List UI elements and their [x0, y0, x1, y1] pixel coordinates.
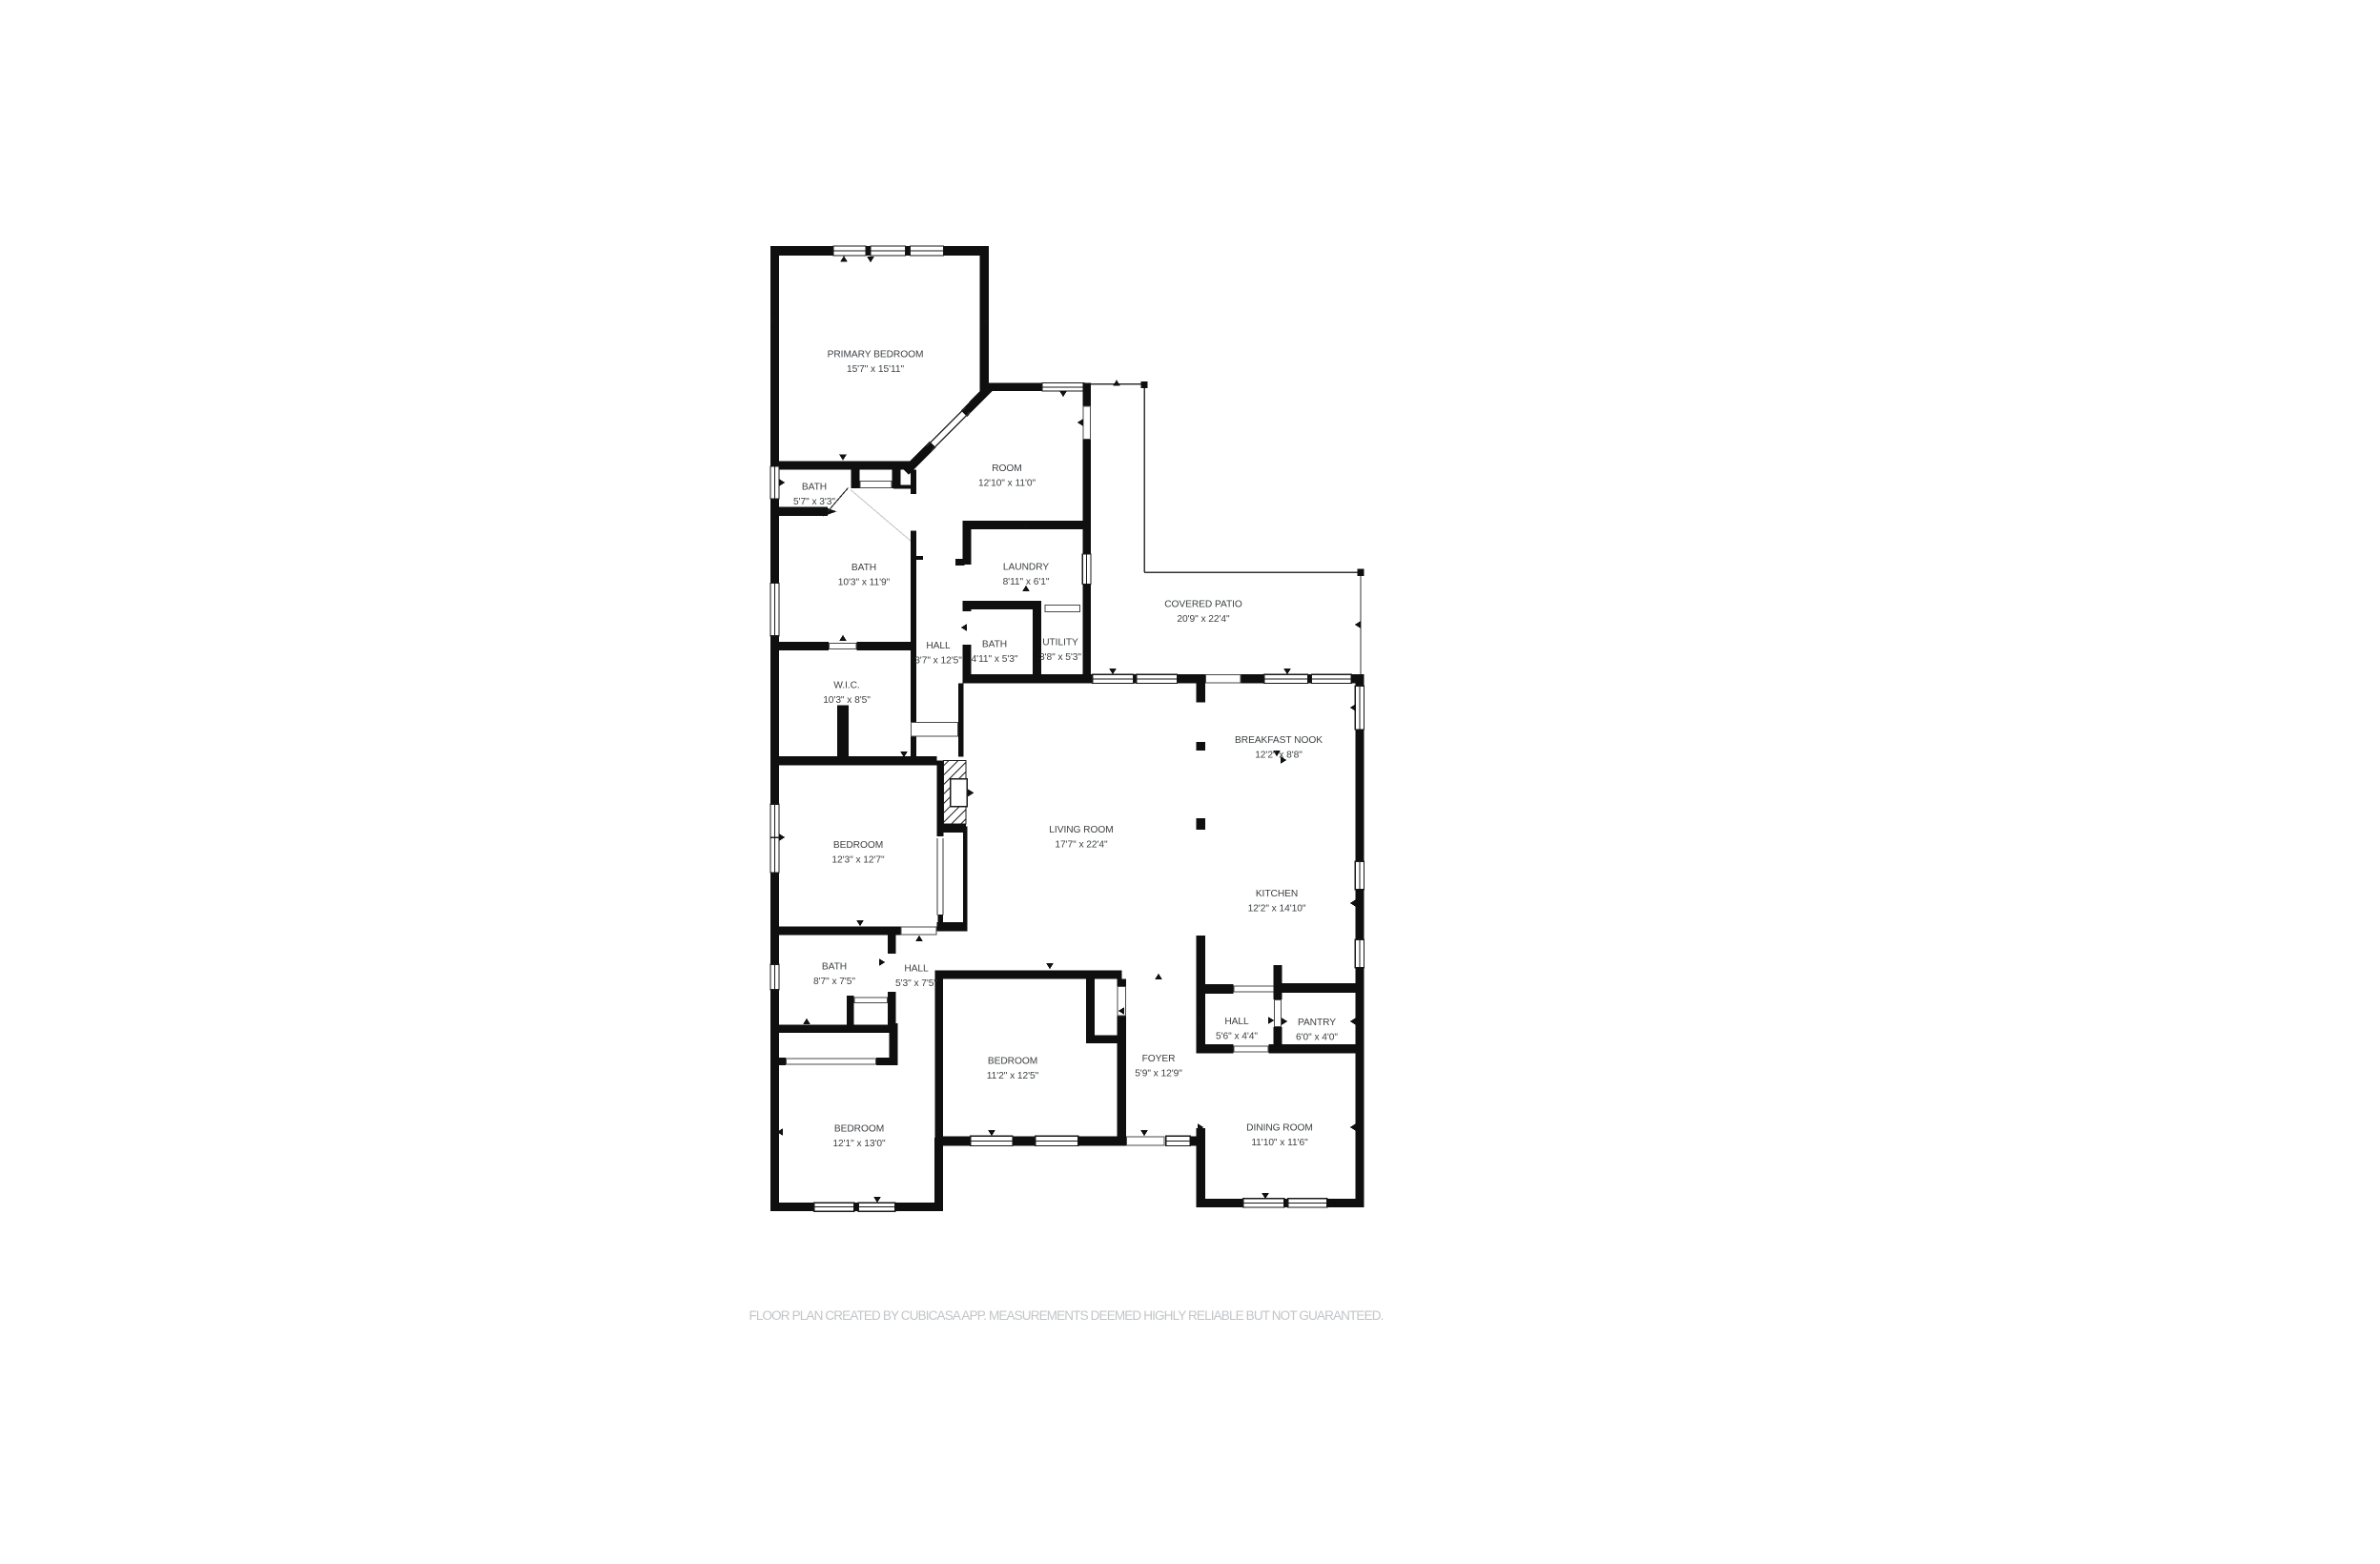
svg-text:5'6" x 4'4": 5'6" x 4'4": [1216, 1031, 1258, 1041]
svg-text:ROOM: ROOM: [992, 463, 1022, 474]
svg-text:LAUNDRY: LAUNDRY: [1003, 563, 1049, 573]
svg-text:BATH: BATH: [851, 563, 876, 573]
svg-text:HALL: HALL: [904, 964, 929, 975]
svg-text:BATH: BATH: [802, 483, 827, 493]
svg-text:HALL: HALL: [926, 641, 951, 651]
svg-text:17'7" x 22'4": 17'7" x 22'4": [1055, 839, 1108, 850]
svg-text:BEDROOM: BEDROOM: [988, 1057, 1037, 1067]
svg-text:15'7" x 15'11": 15'7" x 15'11": [847, 364, 905, 375]
svg-text:10'3" x 8'5": 10'3" x 8'5": [823, 695, 871, 706]
svg-text:PRIMARY BEDROOM: PRIMARY BEDROOM: [828, 350, 924, 360]
svg-text:BEDROOM: BEDROOM: [834, 1124, 884, 1135]
svg-text:12'10" x 11'0": 12'10" x 11'0": [978, 478, 1036, 488]
svg-text:FOYER: FOYER: [1142, 1054, 1176, 1064]
svg-text:12'2" x 8'8": 12'2" x 8'8": [1255, 750, 1303, 760]
svg-text:UTILITY: UTILITY: [1042, 638, 1078, 648]
svg-text:10'3" x 11'9": 10'3" x 11'9": [838, 577, 891, 587]
svg-text:3'7" x 12'5": 3'7" x 12'5": [914, 655, 962, 666]
svg-text:BATH: BATH: [982, 640, 1007, 650]
svg-text:KITCHEN: KITCHEN: [1256, 889, 1298, 899]
svg-text:5'7" x 3'3": 5'7" x 3'3": [793, 497, 835, 507]
svg-text:FLOOR PLAN CREATED BY CUBICASA: FLOOR PLAN CREATED BY CUBICASA APP. MEAS…: [749, 1308, 1383, 1323]
svg-text:8'7" x 7'5": 8'7" x 7'5": [813, 977, 855, 987]
svg-text:5'9" x 12'9": 5'9" x 12'9": [1135, 1068, 1182, 1079]
svg-text:6'0" x 4'0": 6'0" x 4'0": [1296, 1032, 1338, 1042]
svg-text:5'3" x 7'5": 5'3" x 7'5": [895, 978, 937, 989]
svg-text:12'3" x 12'7": 12'3" x 12'7": [831, 854, 885, 865]
svg-text:12'1" x 13'0": 12'1" x 13'0": [832, 1139, 886, 1149]
svg-text:11'10" x 11'6": 11'10" x 11'6": [1251, 1138, 1308, 1148]
svg-text:W.I.C.: W.I.C.: [833, 681, 859, 691]
svg-text:8'11" x 6'1": 8'11" x 6'1": [1003, 577, 1050, 587]
svg-text:LIVING ROOM: LIVING ROOM: [1049, 825, 1113, 835]
svg-text:COVERED PATIO: COVERED PATIO: [1164, 600, 1242, 610]
svg-text:12'2" x 14'10": 12'2" x 14'10": [1248, 903, 1306, 914]
svg-text:PANTRY: PANTRY: [1298, 1018, 1336, 1028]
svg-text:DINING ROOM: DINING ROOM: [1246, 1123, 1313, 1134]
svg-text:HALL: HALL: [1224, 1017, 1249, 1027]
svg-text:11'2" x 12'5": 11'2" x 12'5": [987, 1071, 1039, 1081]
svg-text:BREAKFAST NOOK: BREAKFAST NOOK: [1235, 735, 1323, 746]
svg-text:BEDROOM: BEDROOM: [833, 840, 883, 851]
svg-text:4'11" x 5'3": 4'11" x 5'3": [972, 654, 1018, 665]
svg-text:20'9" x 22'4": 20'9" x 22'4": [1177, 614, 1230, 625]
svg-text:BATH: BATH: [822, 962, 847, 973]
svg-text:3'8" x 5'3": 3'8" x 5'3": [1039, 652, 1081, 663]
